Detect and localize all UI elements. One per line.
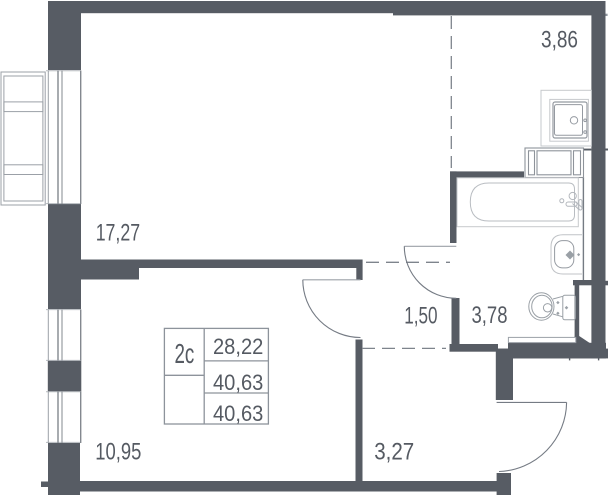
svg-text:3,86: 3,86 [541,27,578,54]
svg-text:17,27: 17,27 [96,220,140,247]
svg-text:3,27: 3,27 [374,439,414,466]
svg-text:40,63: 40,63 [213,370,263,395]
svg-text:3,78: 3,78 [472,302,508,329]
svg-text:1,50: 1,50 [404,303,437,330]
svg-text:40,63: 40,63 [213,401,263,426]
svg-text:2с: 2с [175,338,195,369]
svg-text:28,22: 28,22 [213,334,263,359]
svg-text:10,95: 10,95 [95,439,141,466]
